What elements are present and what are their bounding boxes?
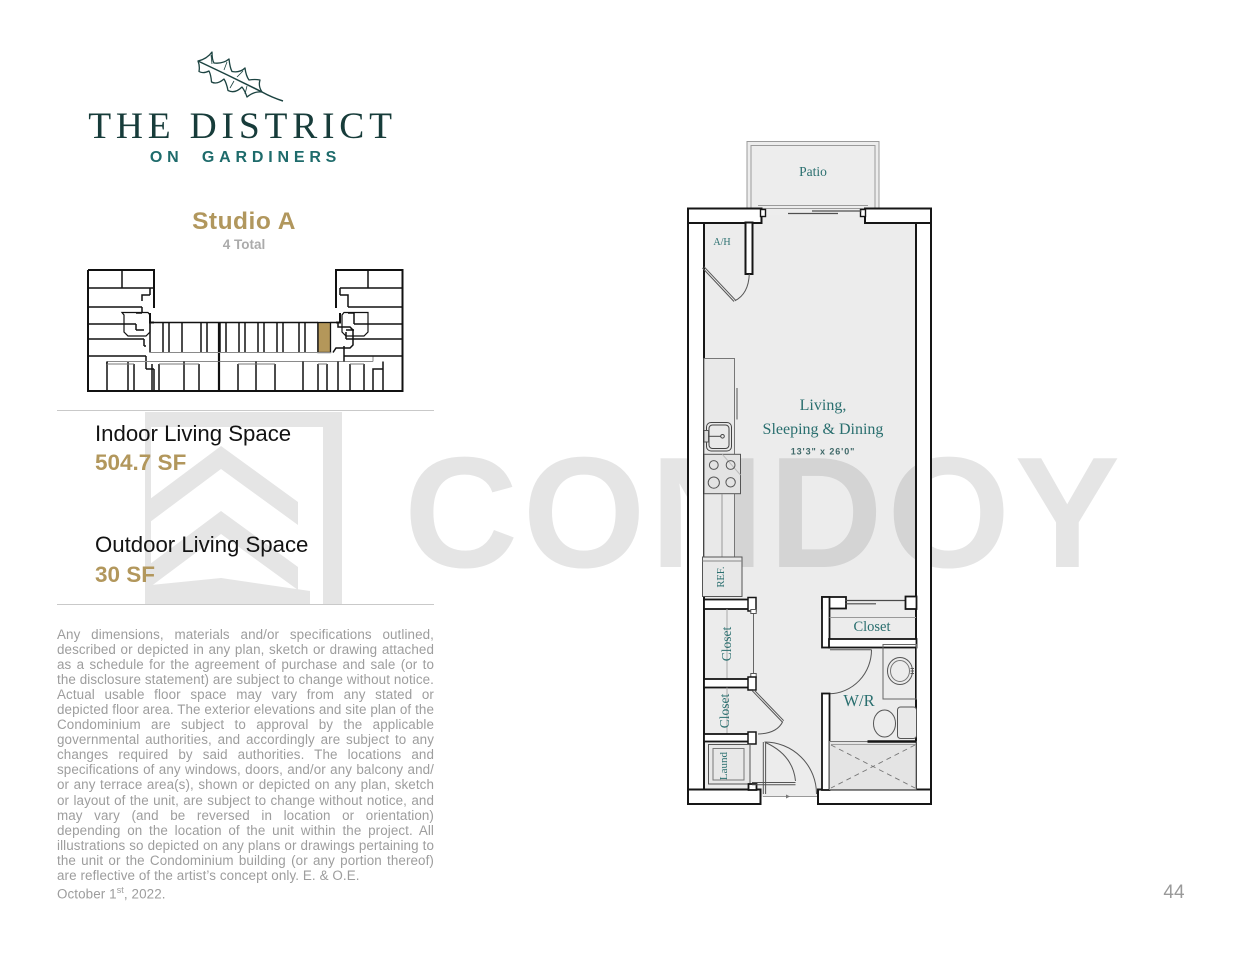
svg-text:A/H: A/H xyxy=(713,237,730,248)
svg-text:W/R: W/R xyxy=(843,691,874,710)
svg-text:13'3" x 26'0": 13'3" x 26'0" xyxy=(791,447,856,457)
svg-text:Laund: Laund xyxy=(718,751,730,780)
svg-text:Patio: Patio xyxy=(799,164,827,179)
svg-text:Sleeping & Dining: Sleeping & Dining xyxy=(763,421,884,438)
svg-text:Closet: Closet xyxy=(853,619,890,635)
svg-text:REF.: REF. xyxy=(716,566,727,587)
svg-text:Living,: Living, xyxy=(800,397,847,414)
svg-text:Closet: Closet xyxy=(719,627,734,662)
svg-text:Closet: Closet xyxy=(717,694,732,729)
